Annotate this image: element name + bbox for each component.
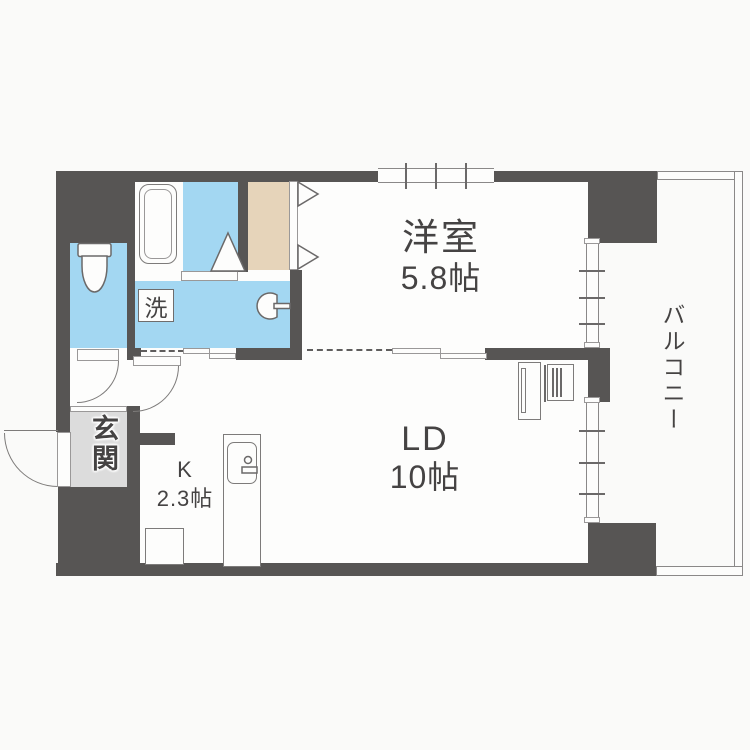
window-tick (579, 462, 605, 464)
washroom-sliding-panel (183, 348, 210, 354)
wall-top-b (494, 171, 588, 182)
wall-top-a (127, 171, 378, 182)
window-tick (579, 493, 605, 495)
tv-bracket (544, 365, 546, 402)
toilet-door-panel (77, 349, 119, 361)
laundry-space: 洗 (138, 289, 174, 322)
entrance-step (70, 406, 127, 412)
western-room-sliding-panel (440, 353, 487, 359)
living-dining-name: LD (325, 419, 525, 459)
window-end-cap (584, 397, 600, 403)
tv-board-stripe (560, 368, 562, 397)
living-dining-size: 10帖 (325, 459, 525, 497)
closet-door-strip (289, 181, 298, 270)
balcony-rail-top (657, 171, 743, 180)
western-room-sliding-panel (392, 348, 441, 354)
tall-cabinet-inner (521, 368, 526, 413)
refrigerator-space (145, 528, 184, 565)
wall-washroom-right (290, 270, 302, 360)
window-tick (579, 323, 605, 325)
window-tick (579, 270, 605, 272)
bathroom-wet-area (183, 180, 238, 272)
entrance-label: 玄関 (84, 414, 123, 484)
window-tick (579, 430, 605, 432)
window-end-cap (584, 342, 600, 348)
wall-bottom-right-block (588, 523, 656, 576)
kitchen-name: K (135, 456, 235, 485)
wall-column (588, 348, 610, 402)
window-western-room (586, 243, 599, 348)
balcony-rail-right (734, 171, 743, 576)
western-room-size: 5.8帖 (331, 260, 551, 298)
window-top-tick (435, 163, 437, 189)
wall-toilet-right (127, 171, 135, 348)
wall-left (56, 171, 70, 432)
window-top-tick (405, 163, 407, 189)
wall-ld-top-a (236, 348, 302, 360)
bathtub-inner (144, 189, 172, 259)
washroom-sliding-track (141, 350, 184, 352)
wall-bath-closet (238, 171, 248, 272)
western-room-label: 洋室 5.8帖 (331, 216, 551, 297)
window-tick (579, 297, 605, 299)
kitchen-size: 2.3帖 (135, 485, 235, 514)
toilet-room-floor (70, 243, 127, 348)
wall-top-right-block (588, 171, 657, 243)
washroom-door-panel (133, 356, 181, 366)
balcony-label: バルコニー (655, 303, 689, 448)
window-end-cap (584, 517, 600, 523)
floor-plan: 洗 洋室 5.8帖 LD 10帖 K 2.3帖 玄関 バルコニー (0, 0, 750, 750)
closet-floor (248, 181, 290, 270)
wall-ld-top-b (485, 348, 588, 360)
living-dining-label: LD 10帖 (325, 419, 525, 497)
kitchen-label: K 2.3帖 (135, 456, 235, 513)
wall-kitchen-stub (132, 433, 175, 445)
laundry-label: 洗 (145, 289, 168, 323)
tv-board-stripe (556, 368, 558, 397)
bathroom-threshold (181, 271, 238, 281)
entrance-door-swing (4, 433, 58, 487)
tv-board-stripe (552, 368, 554, 397)
washroom-sliding-panel (209, 353, 236, 359)
window-top-tick (465, 163, 467, 189)
western-room-name: 洋室 (331, 216, 551, 260)
balcony-rail-bottom (656, 566, 743, 576)
western-room-sliding-track (307, 349, 392, 351)
window-end-cap (584, 238, 600, 244)
entrance-door-opening (57, 432, 71, 487)
